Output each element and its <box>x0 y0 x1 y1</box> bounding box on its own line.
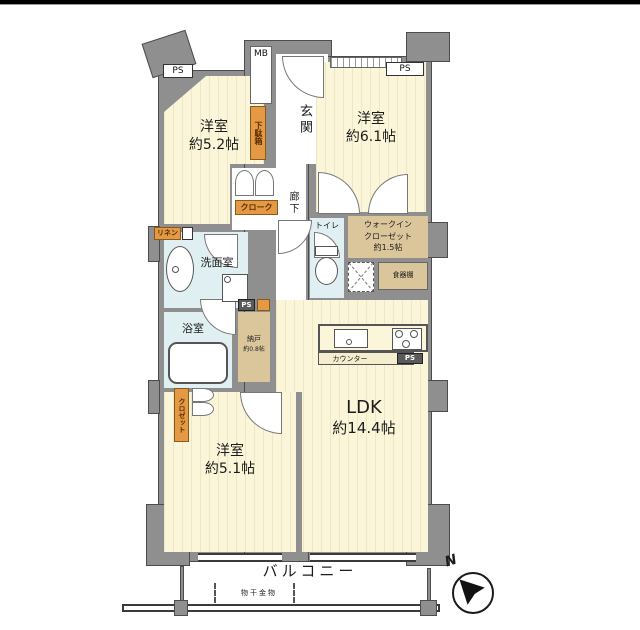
toilet-tank-icon <box>315 246 338 256</box>
room-size: 約5.1帖 <box>178 460 282 478</box>
room-label-toilet: トイレ <box>309 221 345 231</box>
ps-tag: PS <box>163 64 193 78</box>
room-size: 約14.4帖 <box>300 419 428 439</box>
top-bar <box>0 0 640 5</box>
room-name: 洋室 <box>168 118 260 136</box>
sink-drain-icon <box>346 339 352 345</box>
burner-icon <box>402 340 410 348</box>
ps-tag: PS <box>386 62 424 76</box>
refrigerator-cross-icon <box>349 263 373 291</box>
kitchen-sink-icon <box>334 329 368 348</box>
balcony-railing <box>122 604 440 612</box>
compass <box>452 572 494 614</box>
laundry-hook-mark <box>214 583 216 603</box>
room-name: 洋室 <box>178 442 282 460</box>
linen-tag: リネン <box>154 227 181 240</box>
room-label-entrance: 玄関 <box>292 88 312 152</box>
floor-plan: PS PS MB 下駄箱 クローク リネン PS クロゼット PS 洋室 約5.… <box>0 0 640 630</box>
room-label-bedroom-ne: 洋室 約6.1帖 <box>324 110 418 146</box>
vanity-faucet-icon <box>172 266 179 273</box>
washer-drain-icon <box>224 276 231 283</box>
toilet-bowl-icon <box>315 257 338 285</box>
room-label-wic: ウォークイン クローゼット 約1.5帖 <box>348 219 428 254</box>
window-ldk <box>310 553 416 562</box>
burner-icon <box>410 330 418 338</box>
ps-tag: PS <box>238 299 255 311</box>
room-name: 洋室 <box>324 110 418 128</box>
laundry-hardware-label: 物干金物 <box>224 589 294 598</box>
storage-size: 約0.8帖 <box>237 345 271 354</box>
room-label-bedroom-nw: 洋室 約5.2帖 <box>168 118 260 154</box>
small-box-tag <box>182 227 193 240</box>
bathtub-icon <box>168 342 228 384</box>
pillar-left-lower <box>148 380 160 414</box>
cloak-tag: クローク <box>235 200 278 215</box>
ps-tag: PS <box>397 353 423 364</box>
storage-name: 納戸 <box>237 334 271 345</box>
balcony-rod <box>180 566 184 602</box>
bifold-door-icon <box>192 402 214 416</box>
room-label-bathroom: 浴室 <box>170 322 216 336</box>
pillar-top-right <box>406 32 450 62</box>
refrigerator-space <box>348 262 374 292</box>
burner-icon <box>395 330 403 338</box>
mb-tag: MB <box>250 48 272 60</box>
room-size: 約6.1帖 <box>324 128 418 146</box>
bifold-door-icon <box>255 170 274 196</box>
small-box-tag <box>257 299 270 311</box>
window-bedroom-sw <box>198 553 282 562</box>
room-name: LDK <box>300 396 428 419</box>
closet-tag: クロゼット <box>174 388 189 442</box>
room-label-storage: 納戸 約0.8帖 <box>237 334 271 354</box>
room-label-balcony: バルコニー <box>250 562 370 582</box>
room-label-washroom: 洗面室 <box>188 256 246 270</box>
room-size: 約5.2帖 <box>168 136 260 154</box>
railing-post <box>174 600 188 616</box>
bifold-door-icon <box>192 388 214 402</box>
wic-size: 約1.5帖 <box>348 242 428 254</box>
compass-north-label: N <box>440 550 463 573</box>
bifold-door-icon <box>235 170 254 196</box>
room-label-hallway: 廊下 <box>283 180 299 226</box>
counter-label: カウンター <box>322 355 378 364</box>
railing-post <box>420 600 437 616</box>
wic-line2: クローゼット <box>348 231 428 243</box>
room-label-bedroom-sw: 洋室 約5.1帖 <box>178 442 282 478</box>
north-arrow-icon <box>454 574 492 612</box>
wic-line1: ウォークイン <box>348 219 428 231</box>
cupboard-label: 食器棚 <box>378 271 428 280</box>
balcony-rod <box>427 568 431 602</box>
room-label-ldk: LDK 約14.4帖 <box>300 396 428 439</box>
